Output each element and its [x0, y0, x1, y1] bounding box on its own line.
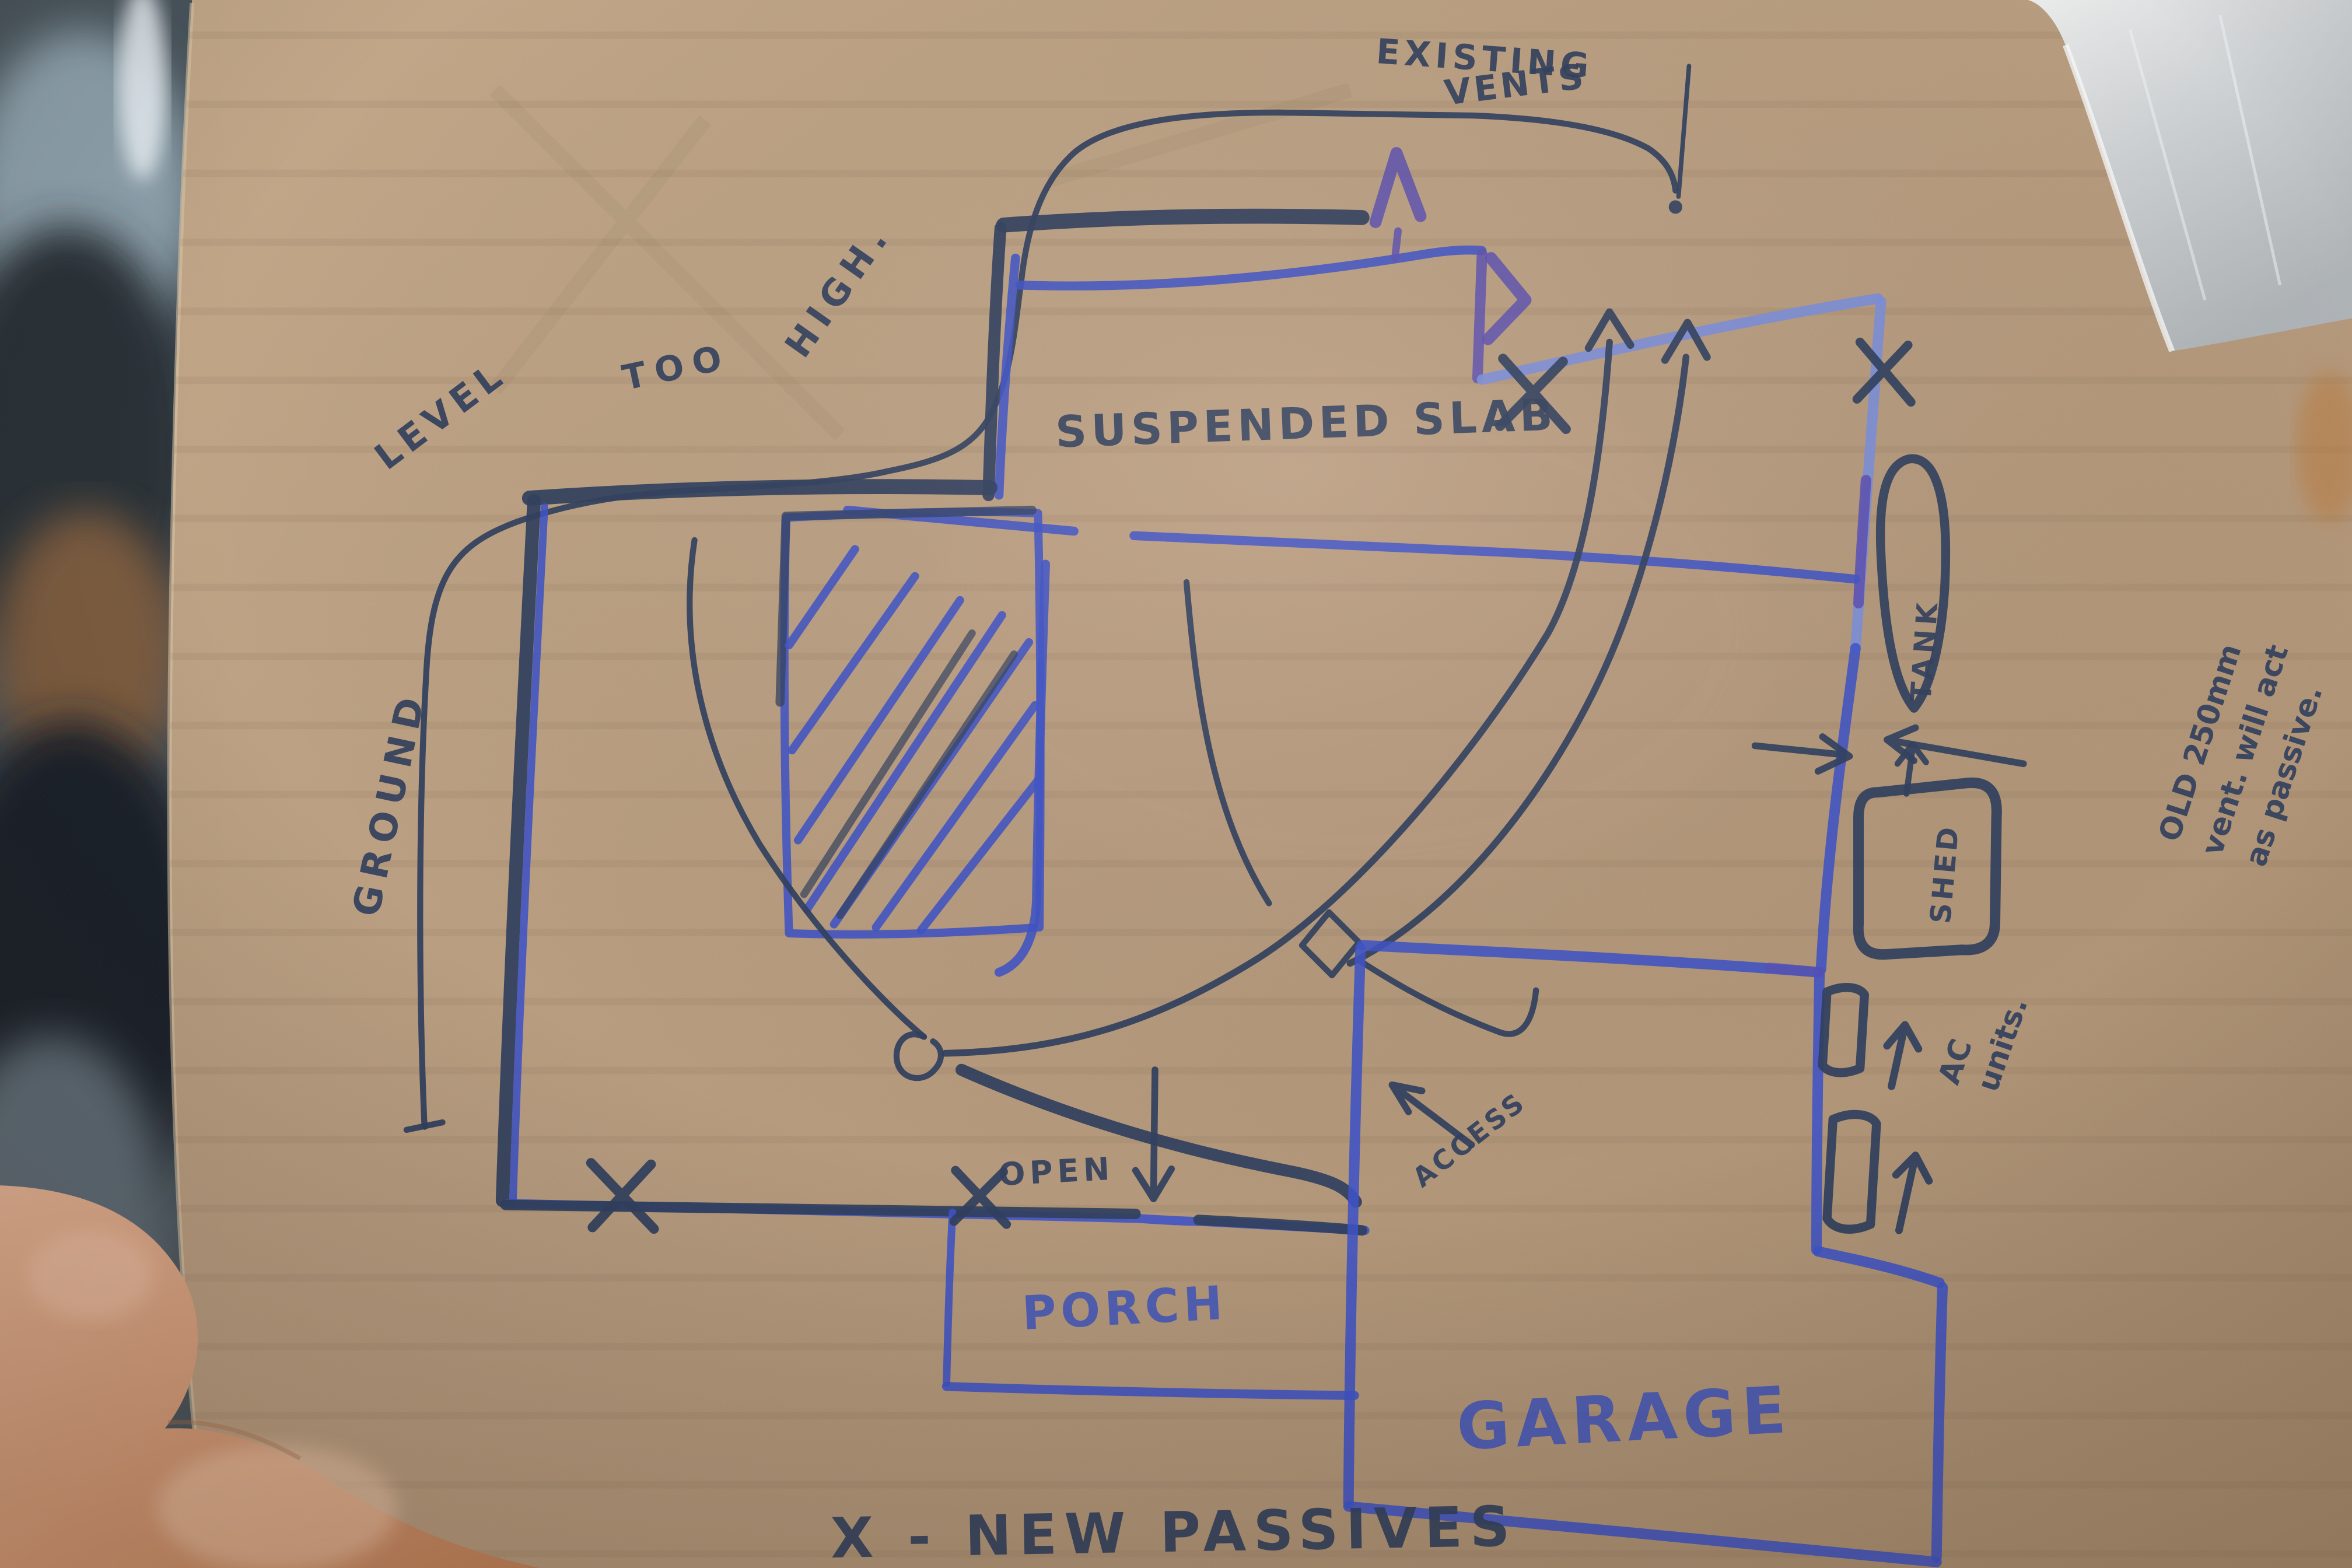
- lighting-overlay: [0, 0, 2352, 1568]
- sketch-canvas: EXISTING VENTS GROUND LEVEL TOO HIGH. SU…: [0, 0, 2352, 1568]
- cardboard-sketch-photo: EXISTING VENTS GROUND LEVEL TOO HIGH. SU…: [0, 0, 2352, 1568]
